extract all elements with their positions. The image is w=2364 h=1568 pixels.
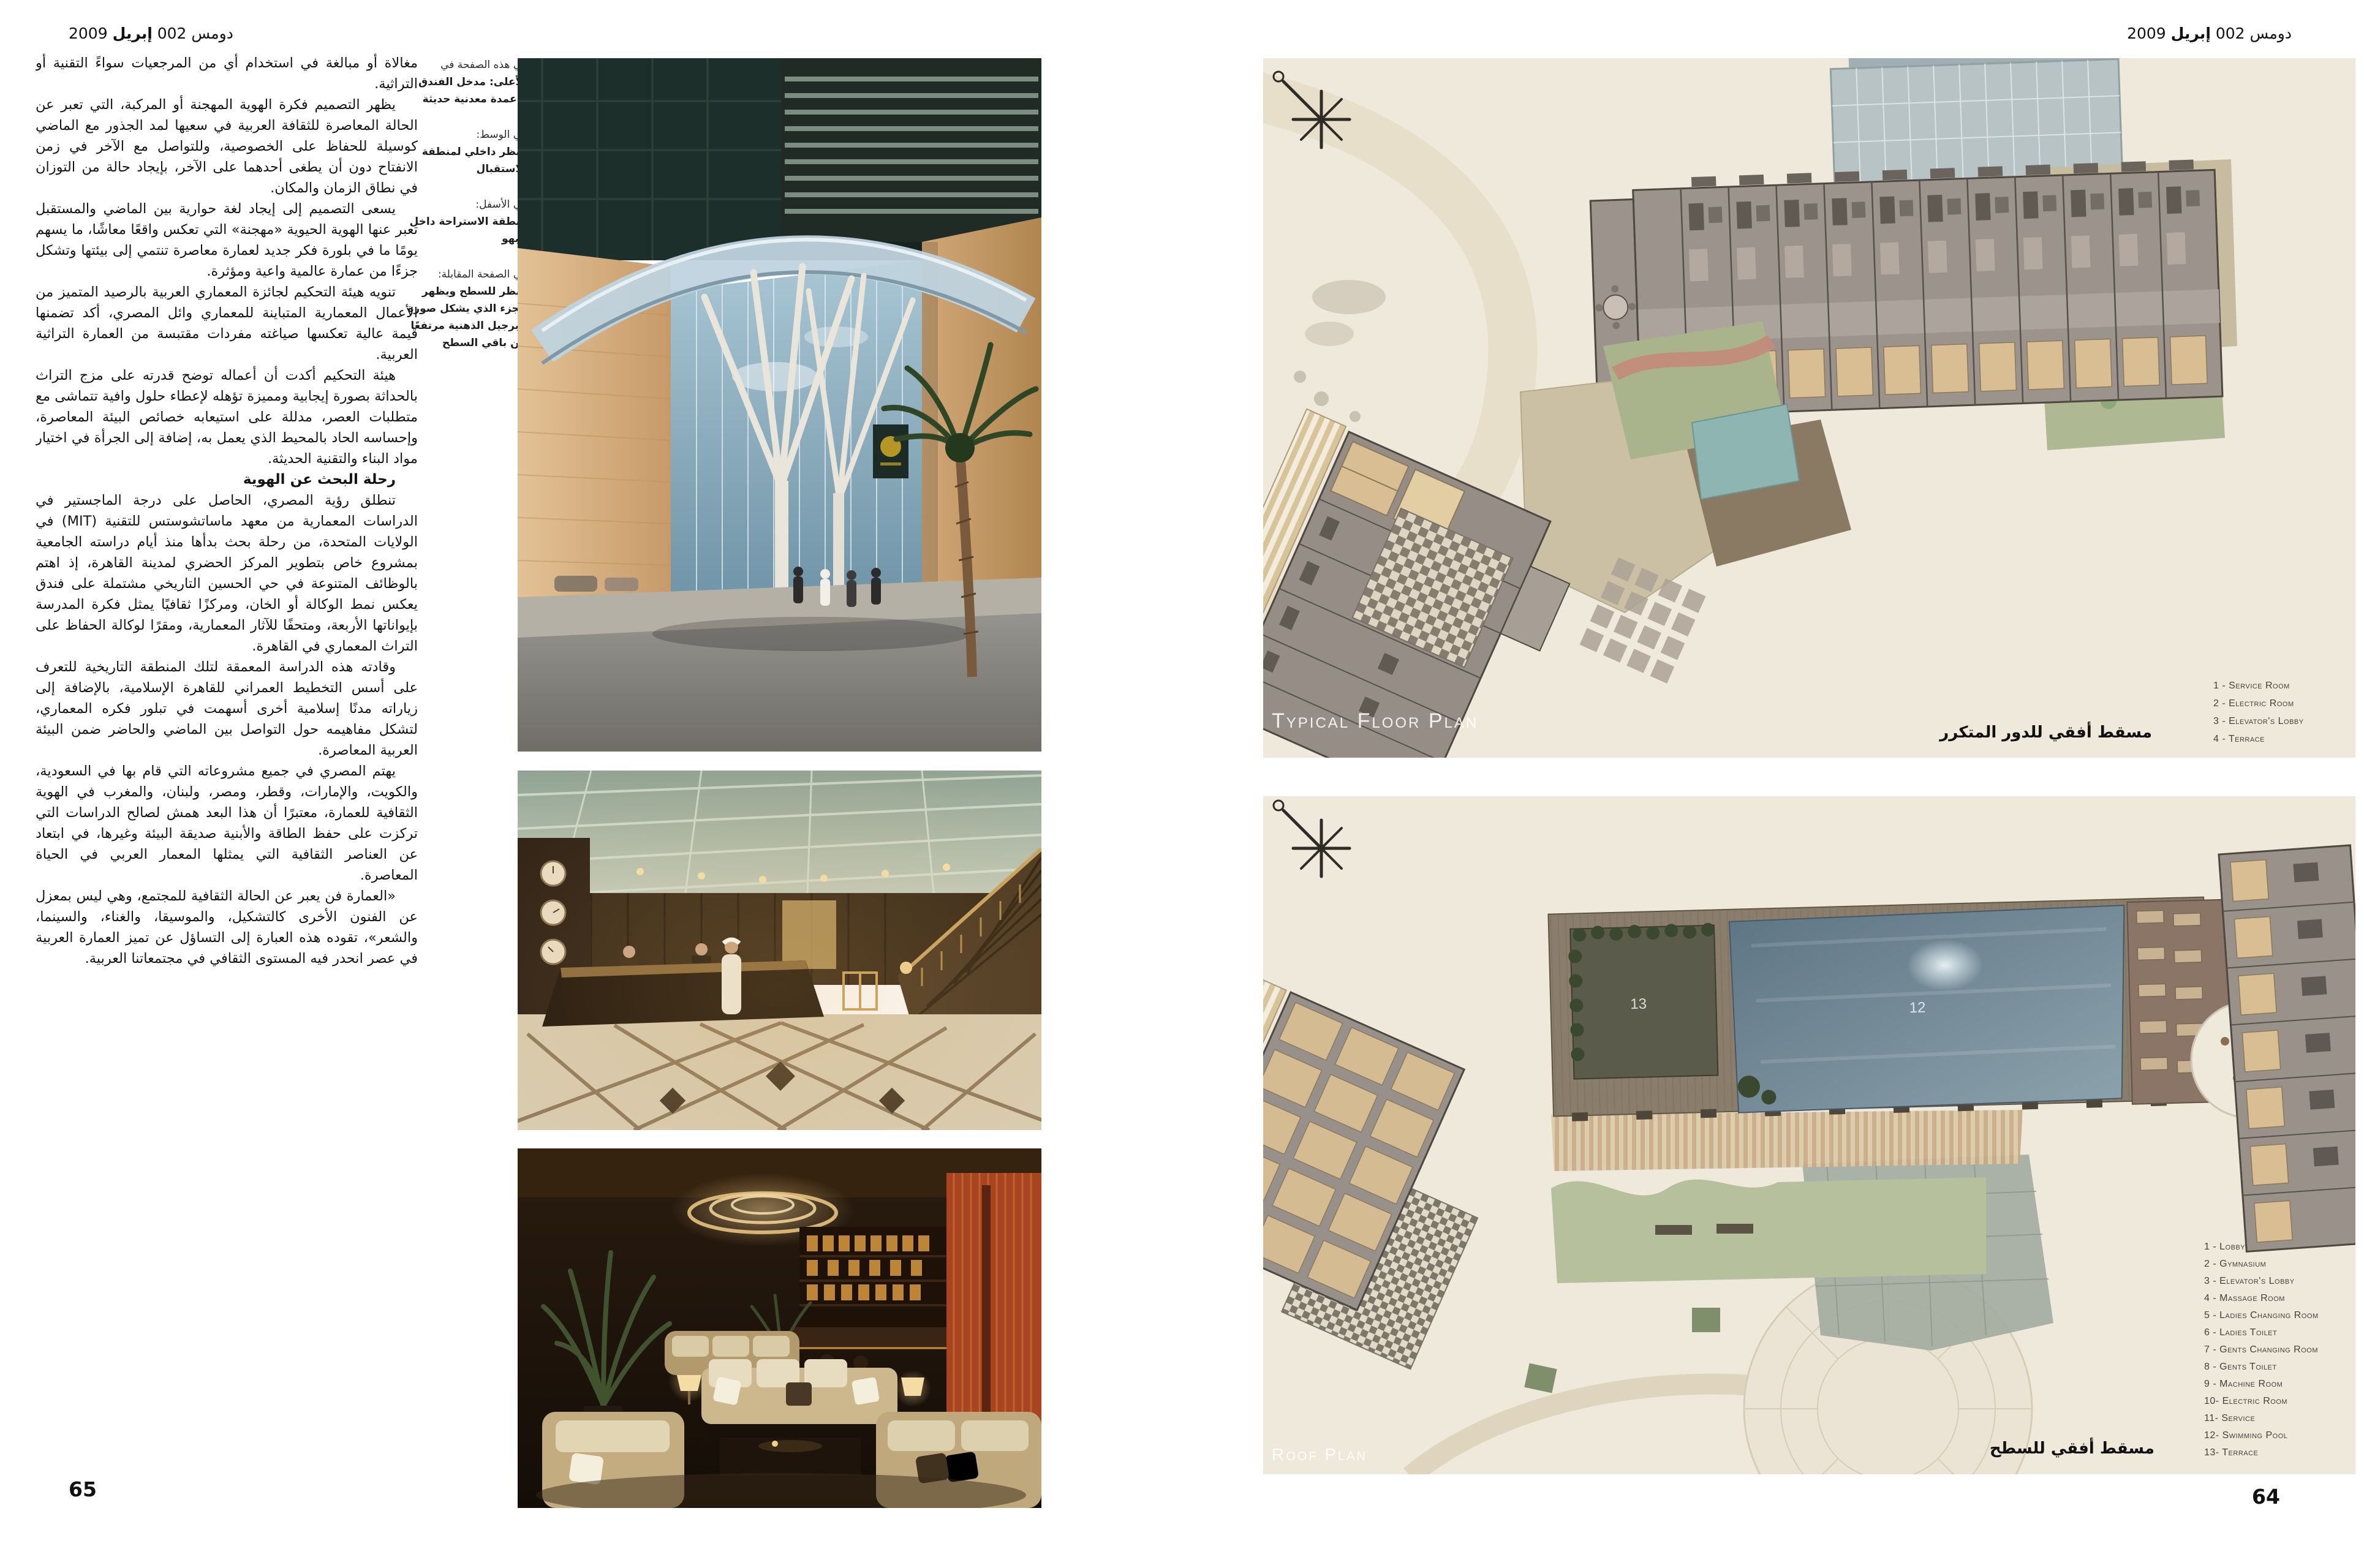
- parked-cars: [554, 576, 638, 592]
- lounge-illustration: [518, 1148, 1041, 1508]
- article-paragraph: «العمارة فن يعبر عن الحالة الثقافية للمج…: [36, 886, 418, 969]
- louver-facade: [781, 58, 1041, 242]
- caption-intro: في الوسط:: [402, 126, 527, 143]
- legend-item: 13- Terrace: [2204, 1444, 2319, 1461]
- page-number-right: 64: [2252, 1485, 2280, 1509]
- legend-item: 7 - Gents Changing Room: [2204, 1341, 2319, 1359]
- entrance-sign: [873, 424, 908, 478]
- caption-text: منطقة الاستراحة داخل البهو: [410, 216, 527, 245]
- roof-terrace-13: 13: [1568, 923, 1718, 1079]
- sofa-center: [701, 1359, 897, 1424]
- article-section-heading: رحلة البحث عن الهوية: [36, 469, 418, 490]
- photo-captions-column: في هذه الصفحة في الأعلى: مدخل الفندق وأع…: [402, 56, 527, 370]
- roof-plan-drawing: 13 12: [1263, 796, 2355, 1474]
- roof-swimming-pool-12: 12: [1729, 905, 2129, 1113]
- caption-intro: في الأسفل:: [402, 196, 527, 213]
- orange-accent-wall: [946, 1173, 1041, 1442]
- issue-month: إبريل: [2171, 24, 2211, 42]
- caption-middle-photo: في الوسط: منظر داخلي لمنطقة الاستقبال: [402, 126, 527, 178]
- caption-text: منظر داخلي لمنطقة الاستقبال: [422, 146, 527, 175]
- plan-roof: 13 12: [1263, 796, 2355, 1474]
- legend-item: 4 - Massage Room: [2204, 1290, 2319, 1307]
- legend-item: 9 - Machine Room: [2204, 1376, 2319, 1393]
- magazine-spread: دومس 002 إبريل 2009 دومس 002 إبريل 2009 …: [0, 0, 2364, 1568]
- issue-header-left: دومس 002 إبريل 2009: [69, 24, 233, 42]
- legend-item: 3 - Elevator's Lobby: [2204, 1273, 2319, 1290]
- plan-legend: 1 - Service Room 2 - Electric Room 3 - E…: [2213, 677, 2304, 748]
- roof-lawn: [1551, 1177, 1986, 1283]
- photo-reception-lobby: [518, 771, 1041, 1130]
- photo-lounge-seating: [518, 1148, 1041, 1508]
- legend-item: 4 - Terrace: [2213, 730, 2304, 748]
- plan-caption-arabic: مسقط أفقي للسطح: [1990, 1439, 2154, 1458]
- caption-text: الأعلى: مدخل الفندق وأعمدة معدنية حديثة: [418, 76, 527, 105]
- legend-item: 11- Service: [2204, 1410, 2319, 1427]
- article-paragraph: يظهر التصميم فكرة الهوية المهجنة أو المر…: [36, 94, 418, 198]
- legend-item: 12- Swimming Pool: [2204, 1427, 2319, 1444]
- article-paragraph: وقادته هذه الدراسة المعمقة لتلك المنطقة …: [36, 657, 418, 761]
- hotel-entrance-illustration: [518, 58, 1041, 752]
- article-paragraph: تنويه هيئة التحكيم لجائزة المعماري العرب…: [36, 282, 418, 365]
- issue-year: 2009: [69, 24, 108, 42]
- article-paragraph: مغالاة أو مبالغة في استخدام أي من المرجع…: [36, 53, 418, 94]
- striped-walkway: [1551, 1110, 2023, 1171]
- article-paragraph: هيئة التحكيم أكدت أن أعماله توضح قدرته ع…: [36, 365, 418, 469]
- article-paragraph: يسعى التصميم إلى إيجاد لغة حوارية بين ال…: [36, 198, 418, 282]
- issue-brand: دومس: [191, 24, 233, 42]
- article-text-column: مغالاة أو مبالغة في استخدام أي من المرجع…: [36, 53, 418, 1443]
- pool-number-label: 12: [1909, 1000, 1925, 1017]
- roof-deck-band: 13 12: [1548, 896, 2239, 1121]
- issue-month: إبريل: [113, 24, 153, 42]
- caption-bottom-photo: في الأسفل: منطقة الاستراحة داخل البهو: [402, 196, 527, 247]
- bar-shelves: [793, 1227, 959, 1370]
- issue-number: 002: [157, 24, 187, 42]
- legend-item: 2 - Gymnasium: [2204, 1256, 2319, 1273]
- legend-item: 2 - Electric Room: [2213, 695, 2304, 712]
- plan-legend: 1 - Lobby 2 - Gymnasium 3 - Elevator's L…: [2204, 1238, 2319, 1461]
- issue-year: 2009: [2127, 24, 2166, 42]
- lobby-illustration: [518, 771, 1041, 1130]
- issue-brand: دومس: [2250, 24, 2292, 42]
- roof-rooms-block: [2219, 845, 2355, 1251]
- legend-item: 3 - Elevator's Lobby: [2213, 712, 2304, 730]
- caption-opposite-page: في الصفحة المقابلة: منظر للسطح ويظهر الج…: [402, 266, 527, 352]
- photo-hotel-entrance: [518, 58, 1041, 752]
- legend-item: 5 - Ladies Changing Room: [2204, 1307, 2319, 1324]
- legend-item: 6 - Ladies Toilet: [2204, 1324, 2319, 1341]
- legend-item: 1 - Lobby: [2204, 1238, 2319, 1256]
- issue-header-right: دومس 002 إبريل 2009: [2127, 24, 2292, 42]
- legend-item: 10- Electric Room: [2204, 1393, 2319, 1410]
- typical-floor-plan-drawing: [1263, 58, 2355, 758]
- plan-title: Typical Floor Plan: [1272, 709, 1478, 733]
- terrace-number-label: 13: [1630, 995, 1647, 1012]
- plan-caption-arabic: مسقط أفقي للدور المتكرر: [1939, 723, 2152, 742]
- caption-intro: في هذه الصفحة في: [402, 56, 527, 73]
- page-number-left: 65: [69, 1477, 97, 1501]
- issue-number: 002: [2216, 24, 2245, 42]
- legend-item: 8 - Gents Toilet: [2204, 1359, 2319, 1376]
- north-arrow-icon: [1274, 801, 1350, 876]
- plan-typical-floor: Typical Floor Plan 1 - Service Room 2 - …: [1263, 58, 2355, 758]
- plan-title: Roof Plan: [1272, 1445, 1367, 1464]
- legend-item: 1 - Service Room: [2213, 677, 2304, 695]
- article-paragraph: يهتم المصري في جميع مشروعاته التي قام به…: [36, 761, 418, 886]
- caption-top-photo: في هذه الصفحة في الأعلى: مدخل الفندق وأع…: [402, 56, 527, 108]
- article-paragraph: تنطلق رؤية المصري، الحاصل على درجة الماج…: [36, 490, 418, 657]
- caption-intro: في الصفحة المقابلة:: [402, 266, 527, 283]
- coffee-table: [720, 1438, 861, 1476]
- caption-text: منظر للسطح ويظهر الجزء الذي يشكل صورة ال…: [407, 285, 527, 349]
